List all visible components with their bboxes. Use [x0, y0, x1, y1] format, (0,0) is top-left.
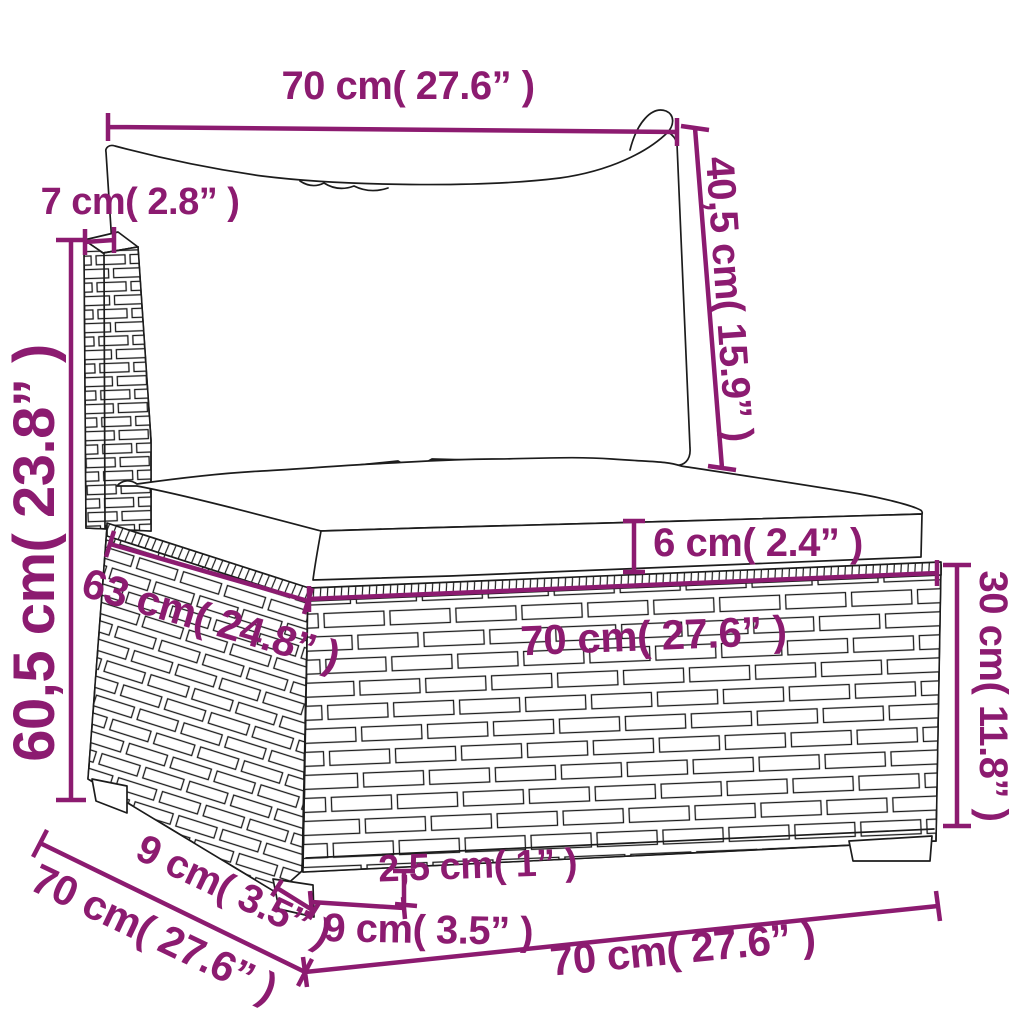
dimension-diagram: 70 cm( 27.6” ) 40,5 cm( 15.9” ) 7 cm( 2.…: [0, 0, 1024, 1024]
dim-line: [943, 565, 971, 826]
dim-label-leg-height: 2,5 cm( 1” ): [377, 842, 577, 891]
dim-label-leg-width: 9 cm( 3.5” ): [323, 906, 533, 954]
sofa-drawing: [84, 110, 941, 917]
leg-back-left: [92, 779, 127, 813]
dim-seat-cushion-thickness: 6 cm( 2.4” ): [623, 521, 863, 572]
dim-leg-height: 2,5 cm( 1” ): [377, 842, 577, 906]
dim-total-height: 60,5 cm( 23.8” ): [2, 240, 86, 800]
dim-label-total-height: 60,5 cm( 23.8” ): [2, 344, 67, 762]
dim-label-back-panel-thickness: 7 cm( 2.8” ): [41, 181, 240, 223]
diagram-canvas: 70 cm( 27.6” ) 40,5 cm( 15.9” ) 7 cm( 2.…: [0, 0, 1024, 1024]
dim-line: [108, 113, 677, 146]
dim-label-seat-cushion-thickness: 6 cm( 2.4” ): [653, 521, 863, 565]
dim-label-back-cushion-width: 70 cm( 27.6” ): [281, 64, 534, 108]
back-panel-corner-line: [104, 253, 105, 528]
dim-back-cushion-height: 40,5 cm( 15.9” ): [681, 126, 761, 470]
leg-front-right: [849, 836, 932, 861]
dim-base-height: 30 cm( 11.8” ): [943, 565, 1015, 826]
dim-label-overall-width: 70 cm( 27.6” ): [548, 912, 817, 984]
base-front-face-weave: [303, 565, 941, 872]
dim-back-cushion-width: 70 cm( 27.6” ): [108, 64, 677, 146]
dim-leg-width: 9 cm( 3.5” ): [310, 891, 533, 954]
dim-label-base-height: 30 cm( 11.8” ): [971, 571, 1015, 822]
